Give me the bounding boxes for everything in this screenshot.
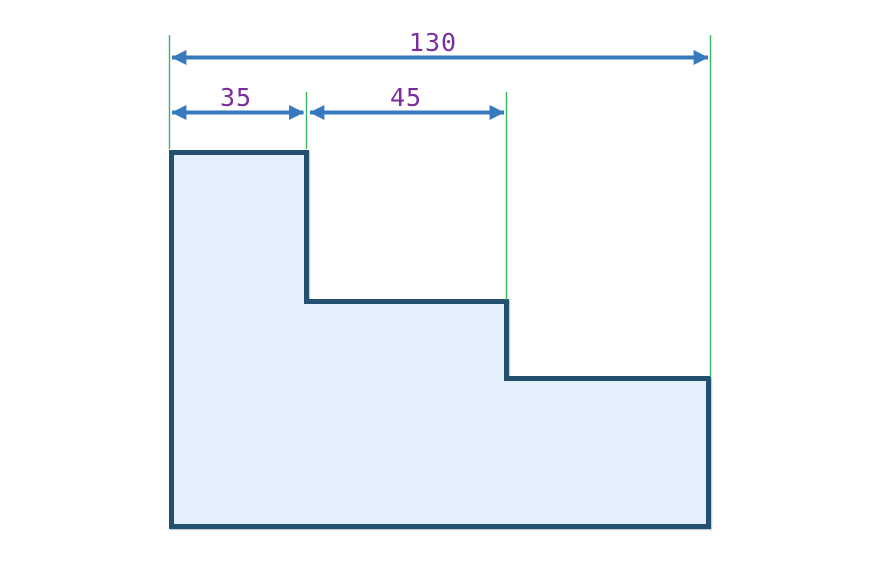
diagram-canvas: 130 35 45 [0, 0, 869, 567]
staircase-shape [172, 153, 709, 527]
step-figure-drawing: 130 35 45 [0, 0, 869, 567]
dimension-label-segment-a: 35 [220, 83, 252, 112]
dimension-label-total: 130 [409, 28, 457, 57]
dimension-label-segment-b: 45 [390, 83, 422, 112]
